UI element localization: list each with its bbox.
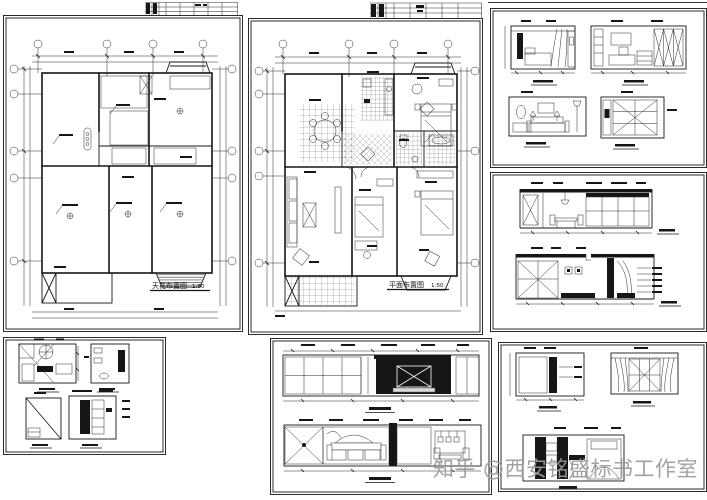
floor-plan-title-text: 平面布置图 bbox=[389, 280, 424, 289]
elevation-passage bbox=[516, 247, 681, 306]
detail-plan bbox=[19, 339, 79, 393]
floor-plan-scale-text: 1:50 bbox=[431, 283, 444, 289]
elevation-bed-wall bbox=[505, 20, 575, 85]
elevation-sofa-wall bbox=[509, 91, 586, 147]
cad-drawing-sheet: 天花布置图 1:60 bbox=[0, 0, 707, 500]
title-block-table-1 bbox=[145, 0, 238, 15]
watermark-handle-text: @西安铭盛标书工作室 bbox=[483, 457, 698, 481]
elevation-tv-wall bbox=[283, 344, 479, 413]
sheet-ceiling-plan: 天花布置图 1:60 bbox=[3, 15, 243, 332]
sheet-dining-elevations bbox=[490, 172, 707, 332]
detail-bath-elevation-3 bbox=[69, 390, 130, 448]
living-room-furniture bbox=[287, 177, 341, 265]
floor-plan-title: 平面布置图 1:50 bbox=[387, 280, 449, 290]
ceiling-hatches bbox=[101, 76, 210, 287]
bedroom3-furniture bbox=[415, 171, 453, 266]
sheet-detail-drawings bbox=[3, 337, 166, 455]
elevation-grid-cabinet bbox=[510, 347, 584, 411]
detail-bath-elevation-1 bbox=[84, 344, 129, 392]
elevation-window-curtains bbox=[611, 347, 678, 406]
elevation-tv-wardrobe bbox=[591, 20, 686, 85]
elevation-dining-partition bbox=[520, 182, 679, 234]
plan-walls bbox=[42, 62, 212, 303]
detail-bath-elevation-2 bbox=[26, 392, 61, 448]
ceiling-plan-title-text: 天花布置图 bbox=[152, 281, 187, 290]
ceiling-plan-drawing: 天花布置图 1:60 bbox=[4, 16, 244, 333]
ceiling-plan-scale-text: 1:60 bbox=[192, 284, 205, 290]
elevation-lattice-cabinet bbox=[601, 91, 677, 149]
watermark: 知乎@西安铭盛标书工作室 bbox=[433, 457, 698, 482]
dining-elevations-drawing bbox=[491, 173, 707, 333]
bedroom-elevations-drawing bbox=[491, 9, 707, 169]
floor-plan-drawing: 平面布置图 1:50 bbox=[249, 19, 484, 336]
sheet-bedroom-elevations bbox=[490, 8, 707, 168]
detail-drawings bbox=[4, 338, 167, 456]
title-block-table-2 bbox=[370, 0, 482, 18]
sheet-edge-line bbox=[488, 2, 707, 3]
sheet-floor-plan: 平面布置图 1:50 bbox=[248, 18, 483, 335]
watermark-logo-text: 知乎 bbox=[433, 457, 476, 481]
